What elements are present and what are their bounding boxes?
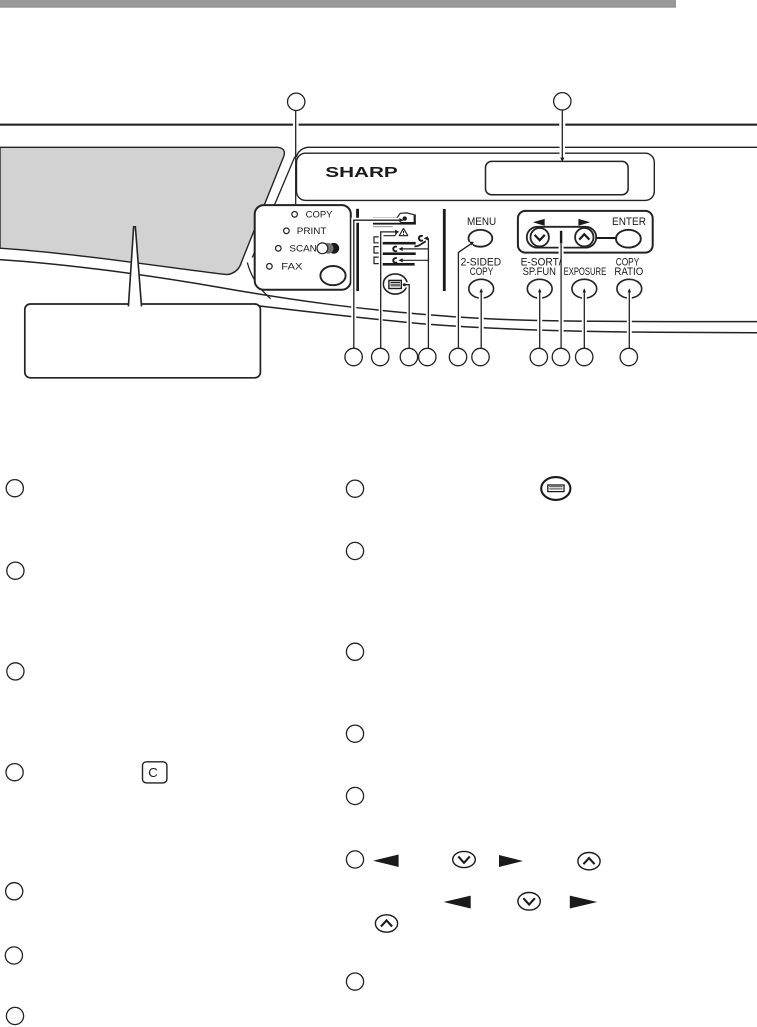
svg-text:COPY: COPY [470, 266, 494, 278]
svg-text:SCAN: SCAN [289, 243, 316, 253]
svg-text:MENU: MENU [467, 216, 496, 228]
svg-text:SP.FUN: SP.FUN [523, 266, 556, 278]
svg-text:COPY: COPY [306, 209, 333, 219]
svg-text:SHARP: SHARP [325, 165, 397, 181]
svg-text:RATIO: RATIO [614, 266, 643, 278]
svg-text:EXPOSURE: EXPOSURE [564, 266, 607, 278]
svg-text:ENTER: ENTER [612, 216, 646, 228]
svg-text:PRINT: PRINT [297, 226, 327, 236]
svg-text:FAX: FAX [281, 261, 302, 271]
svg-text:C: C [148, 765, 158, 780]
